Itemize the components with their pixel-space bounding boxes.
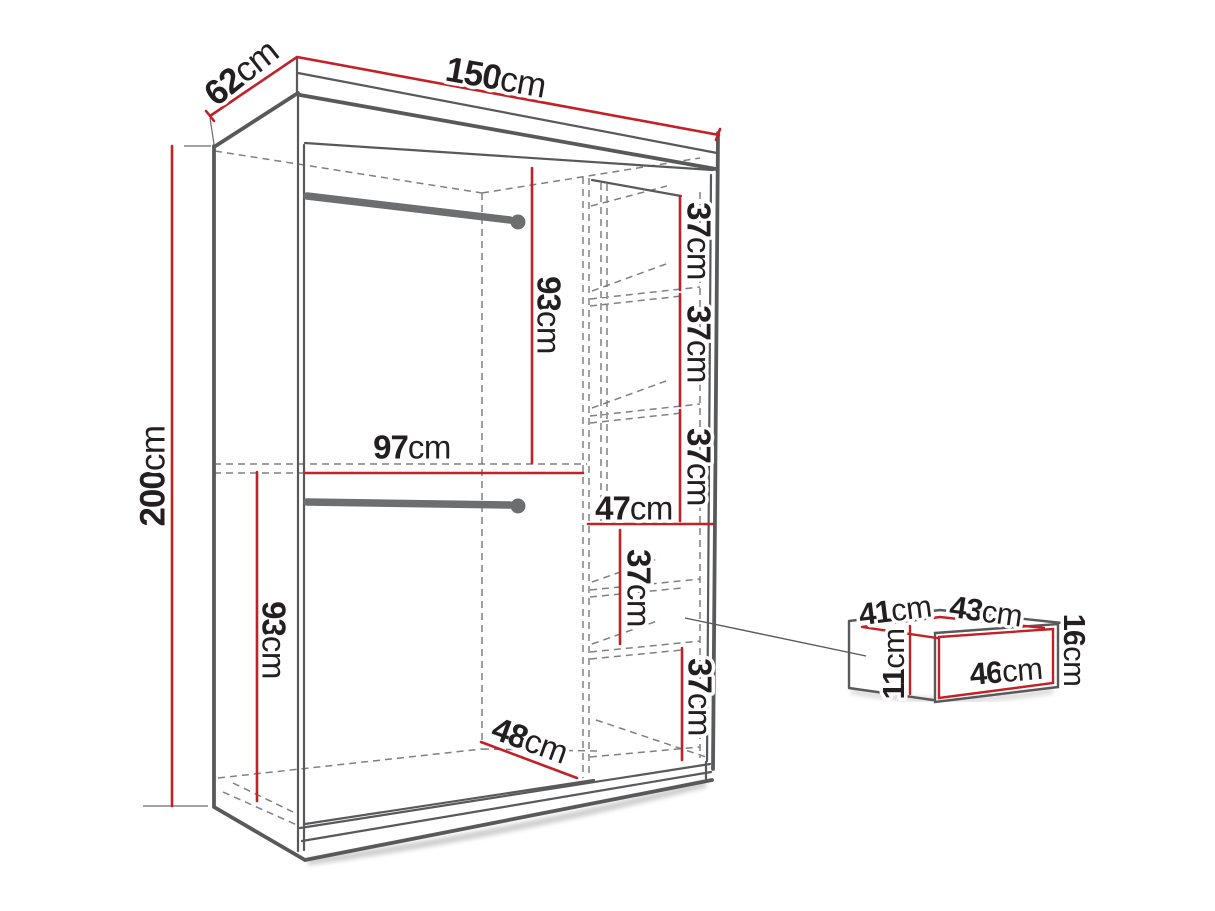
dim-label-drawer-top-right: 43cm	[947, 589, 1024, 634]
dim-label-height: 200cm	[133, 425, 172, 526]
rail-end-knob	[511, 215, 526, 230]
dim-label-depth: 62cm	[197, 32, 286, 114]
dim-label-shelf-gap-2: 37cm	[680, 305, 717, 383]
hanging-rail-upper	[307, 196, 526, 230]
dim-label-shelf-gap-1: 37cm	[680, 202, 717, 280]
dim-label-drawer-front-height: 16cm	[1057, 614, 1092, 687]
dim-label-drawer-gap-2: 37cm	[681, 658, 718, 736]
dim-label-left-inner-width: 97cm	[373, 429, 451, 466]
hidden-edges-dashed	[214, 151, 706, 825]
dim-label-shelf-gap-3: 37cm	[680, 428, 717, 506]
dim-label-upper-section: 93cm	[530, 276, 567, 354]
dim-label-lower-section: 93cm	[255, 601, 292, 679]
dim-label-width: 150cm	[443, 50, 549, 106]
dim-label-right-inner-width: 47cm	[595, 490, 673, 527]
dim-label-drawer-top-left: 41cm	[857, 589, 934, 633]
cabinet-edges-bold	[214, 93, 718, 860]
dim-label-drawer-gap-1: 37cm	[620, 549, 657, 627]
hanging-rail-lower	[307, 499, 526, 514]
rail-end-knob	[511, 499, 526, 514]
dim-label-drawer-front-width: 46cm	[968, 651, 1044, 692]
wardrobe-dimension-diagram: 150cm 62cm 200cm 93cm 97cm 93cm 37cm 37c…	[0, 0, 1215, 911]
dim-label-drawer-side-height: 11cm	[876, 628, 911, 699]
diagram-canvas: 150cm 62cm 200cm 93cm 97cm 93cm 37cm 37c…	[0, 0, 1215, 911]
